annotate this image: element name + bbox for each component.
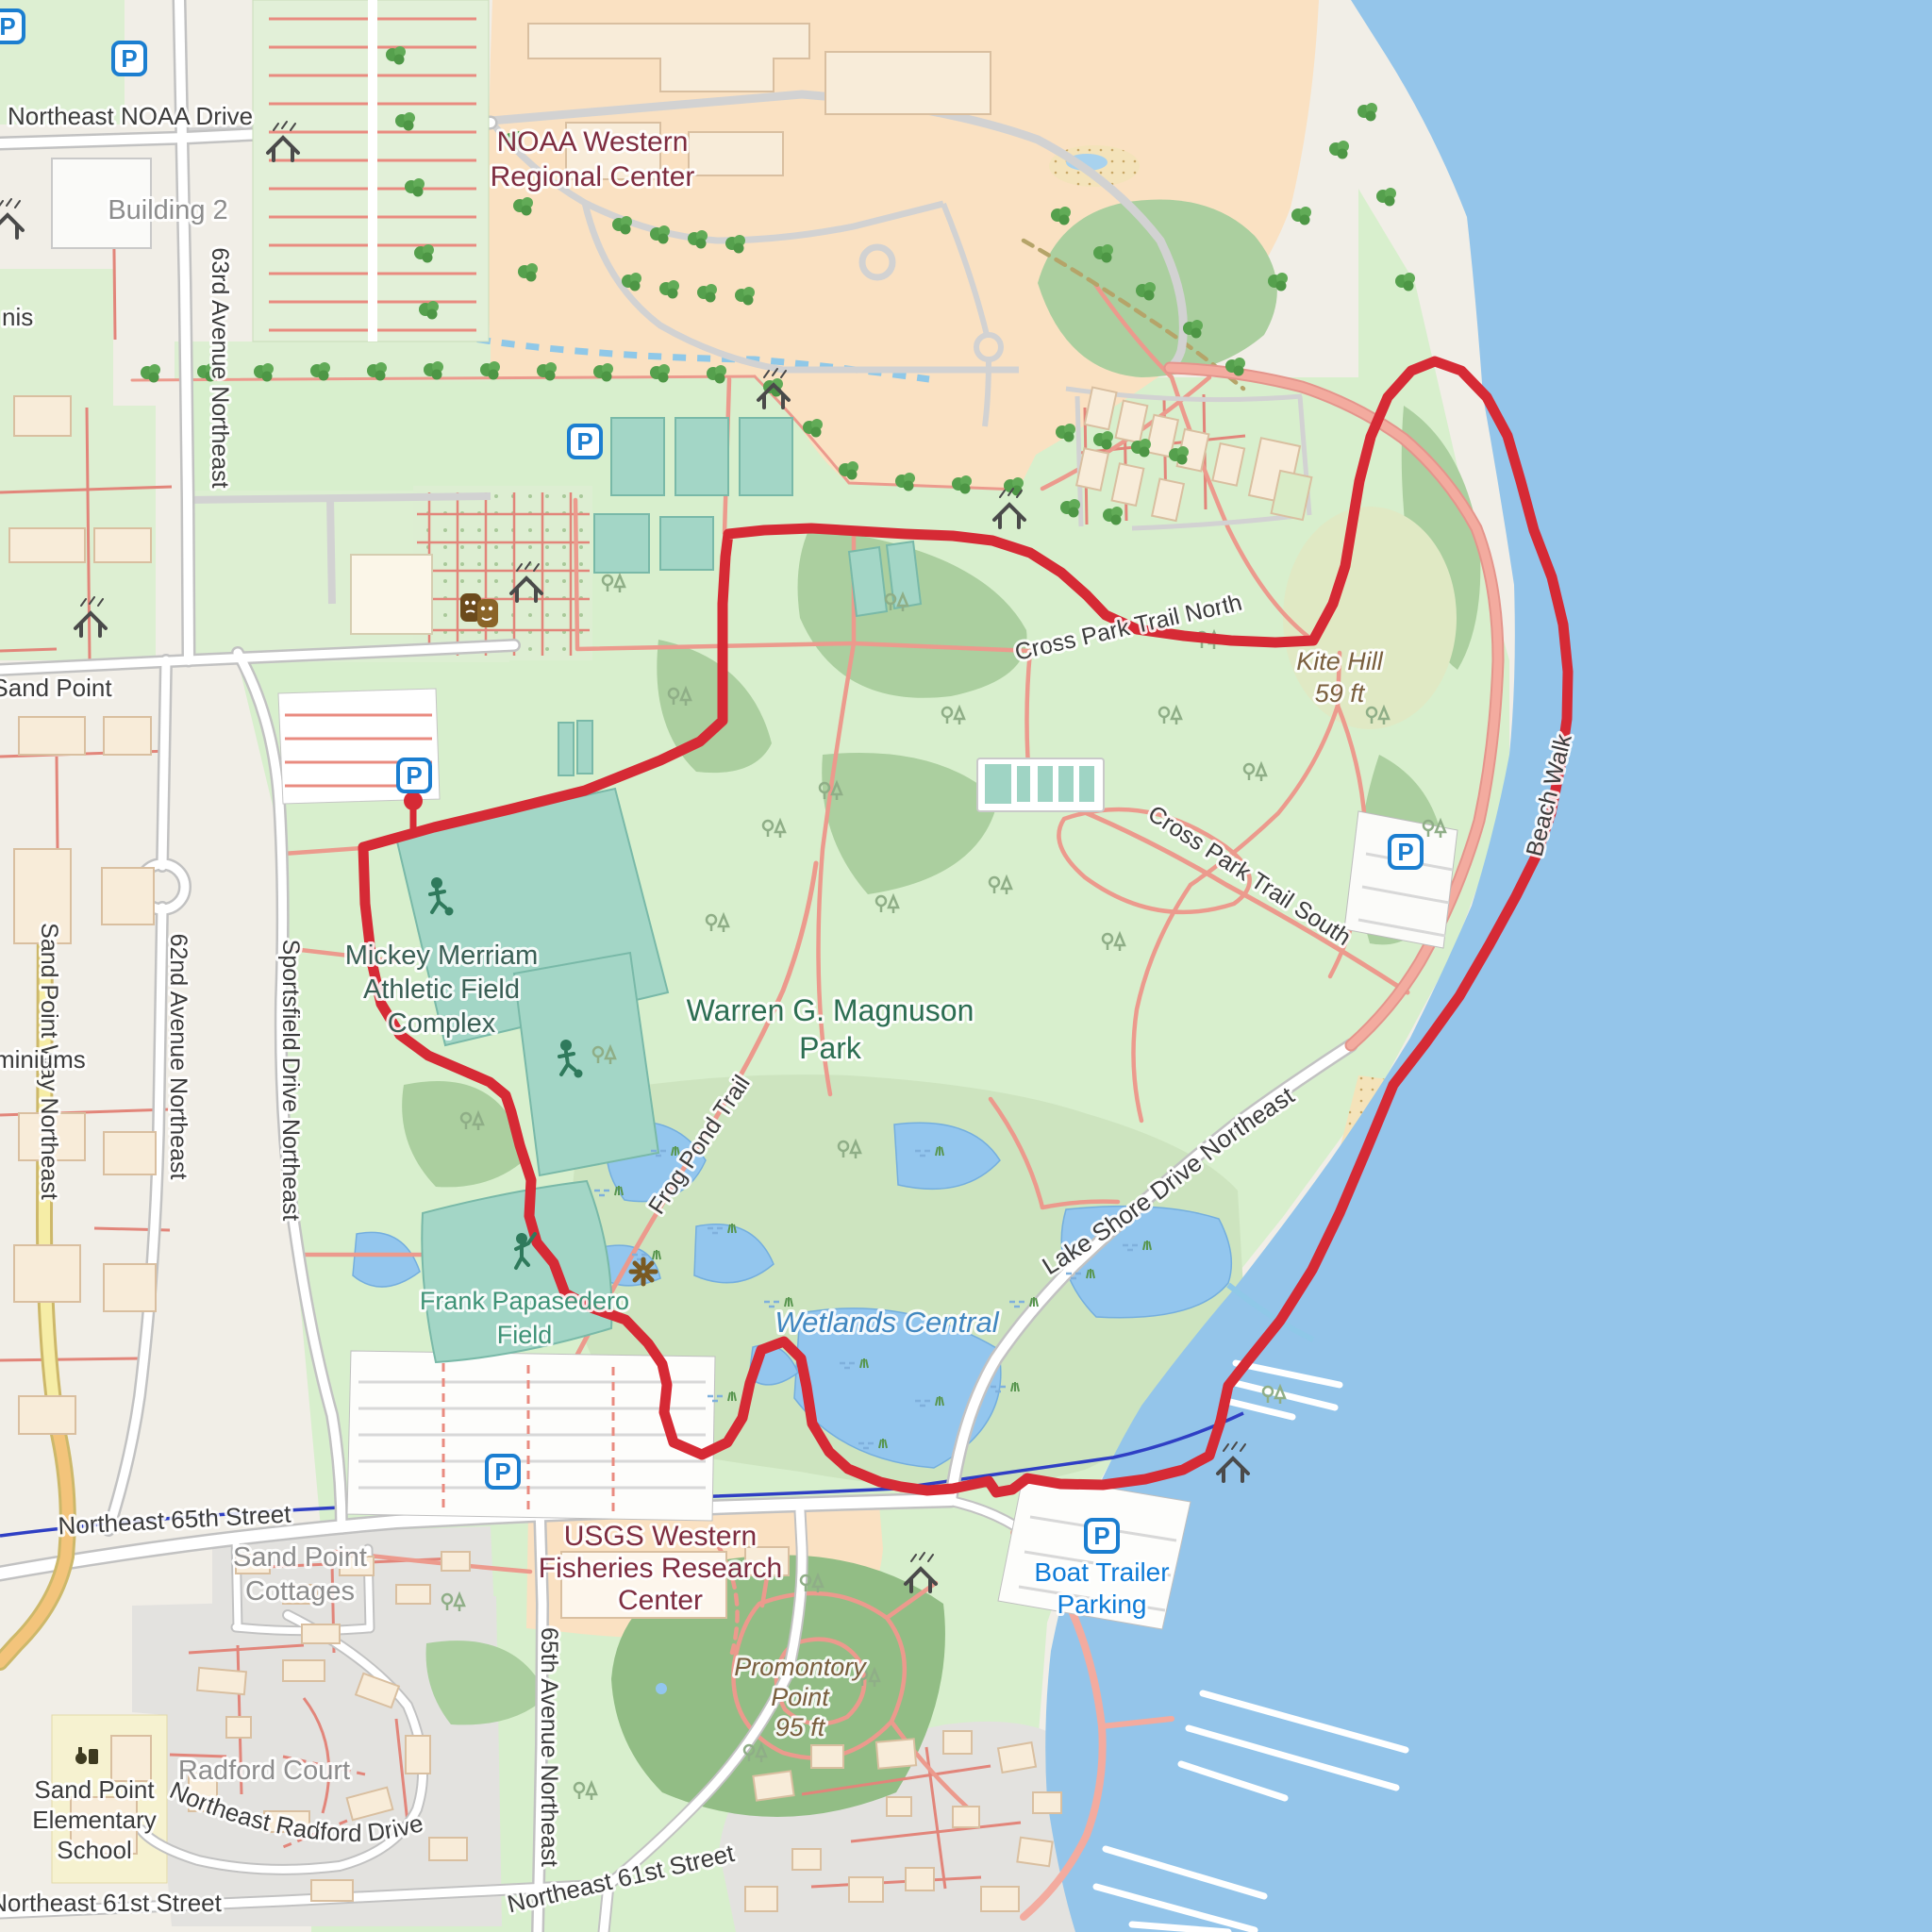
svg-text:P: P	[121, 44, 137, 73]
label-cottages-1: Sand Point	[233, 1542, 367, 1573]
label-usgs-1: USGS Western	[564, 1521, 758, 1552]
label-usgs-2: Fisheries Research	[539, 1553, 782, 1584]
label-school-3: School	[57, 1836, 132, 1864]
route-start-marker	[404, 791, 423, 810]
parking-icon: P	[398, 759, 430, 791]
parking-icon: P	[1086, 1520, 1118, 1552]
label-radford-court: Radford Court	[178, 1756, 350, 1786]
label-athletic-complex-1: Mickey Merriam	[345, 941, 539, 971]
label-noaa-drive: Northeast NOAA Drive	[8, 102, 253, 130]
label-noaa-center-2: Regional Center	[491, 161, 695, 192]
label-sand-point: Sand Point	[0, 674, 112, 702]
svg-text:P: P	[1093, 1522, 1109, 1550]
label-boat-parking-1: Boat Trailer	[1034, 1557, 1169, 1587]
parking-icon: P	[569, 425, 601, 458]
hangar-zone	[413, 486, 592, 660]
label-61st-left: Northeast 61st Street	[0, 1889, 223, 1917]
label-kite-hill-2: 59 ft	[1315, 679, 1366, 708]
label-tennis-partial: nis	[2, 303, 33, 331]
parking-icon: P	[487, 1456, 519, 1488]
label-promontory-1: Promontory	[734, 1653, 867, 1681]
label-condo-partial: miniums	[0, 1045, 86, 1074]
label-frank-field-1: Frank Papasedero	[420, 1287, 629, 1315]
label-frank-field-2: Field	[497, 1321, 553, 1349]
label-promontory-2: Point	[771, 1683, 830, 1711]
label-boat-parking-2: Parking	[1058, 1590, 1147, 1619]
label-park-name-1: Warren G. Magnuson	[687, 993, 974, 1027]
svg-text:P: P	[576, 427, 592, 456]
label-promontory-3: 95 ft	[775, 1713, 826, 1741]
map-viewport[interactable]: P P P P P P P Northeast NOAA Drive Build…	[0, 0, 1932, 1932]
label-school-1: Sand Point	[34, 1775, 155, 1804]
label-usgs-3: Center	[618, 1585, 703, 1616]
parking-icon: P	[113, 42, 145, 75]
label-kite-hill-1: Kite Hill	[1296, 647, 1384, 675]
svg-text:P: P	[406, 761, 422, 790]
svg-text:P: P	[1397, 838, 1413, 866]
sports-center-building	[977, 758, 1104, 811]
kite-hill-area	[1283, 507, 1457, 729]
label-building2: Building 2	[108, 195, 227, 225]
label-62nd-ave: 62nd Avenue Northeast	[165, 934, 192, 1180]
label-65th-ave: 65th Avenue Northeast	[536, 1627, 562, 1867]
label-wetlands-central: Wetlands Central	[774, 1306, 999, 1339]
label-school-2: Elementary	[32, 1806, 157, 1834]
label-noaa-center-1: NOAA Western	[497, 126, 689, 158]
parking-icon: P	[1390, 836, 1422, 868]
label-park-name-2: Park	[799, 1031, 862, 1065]
svg-text:P: P	[494, 1457, 510, 1486]
svg-text:P: P	[0, 12, 16, 41]
label-63rd-ave: 63rd Avenue Northeast	[207, 247, 233, 488]
label-sportsfield-dr: Sportsfield Drive Northeast	[277, 940, 304, 1222]
label-athletic-complex-2: Athletic Field	[363, 974, 520, 1005]
label-athletic-complex-3: Complex	[388, 1008, 496, 1039]
map-canvas[interactable]: P P P P P P P Northeast NOAA Drive Build…	[0, 0, 1932, 1932]
label-cottages-2: Cottages	[245, 1576, 355, 1607]
parking-icon: P	[0, 10, 24, 42]
